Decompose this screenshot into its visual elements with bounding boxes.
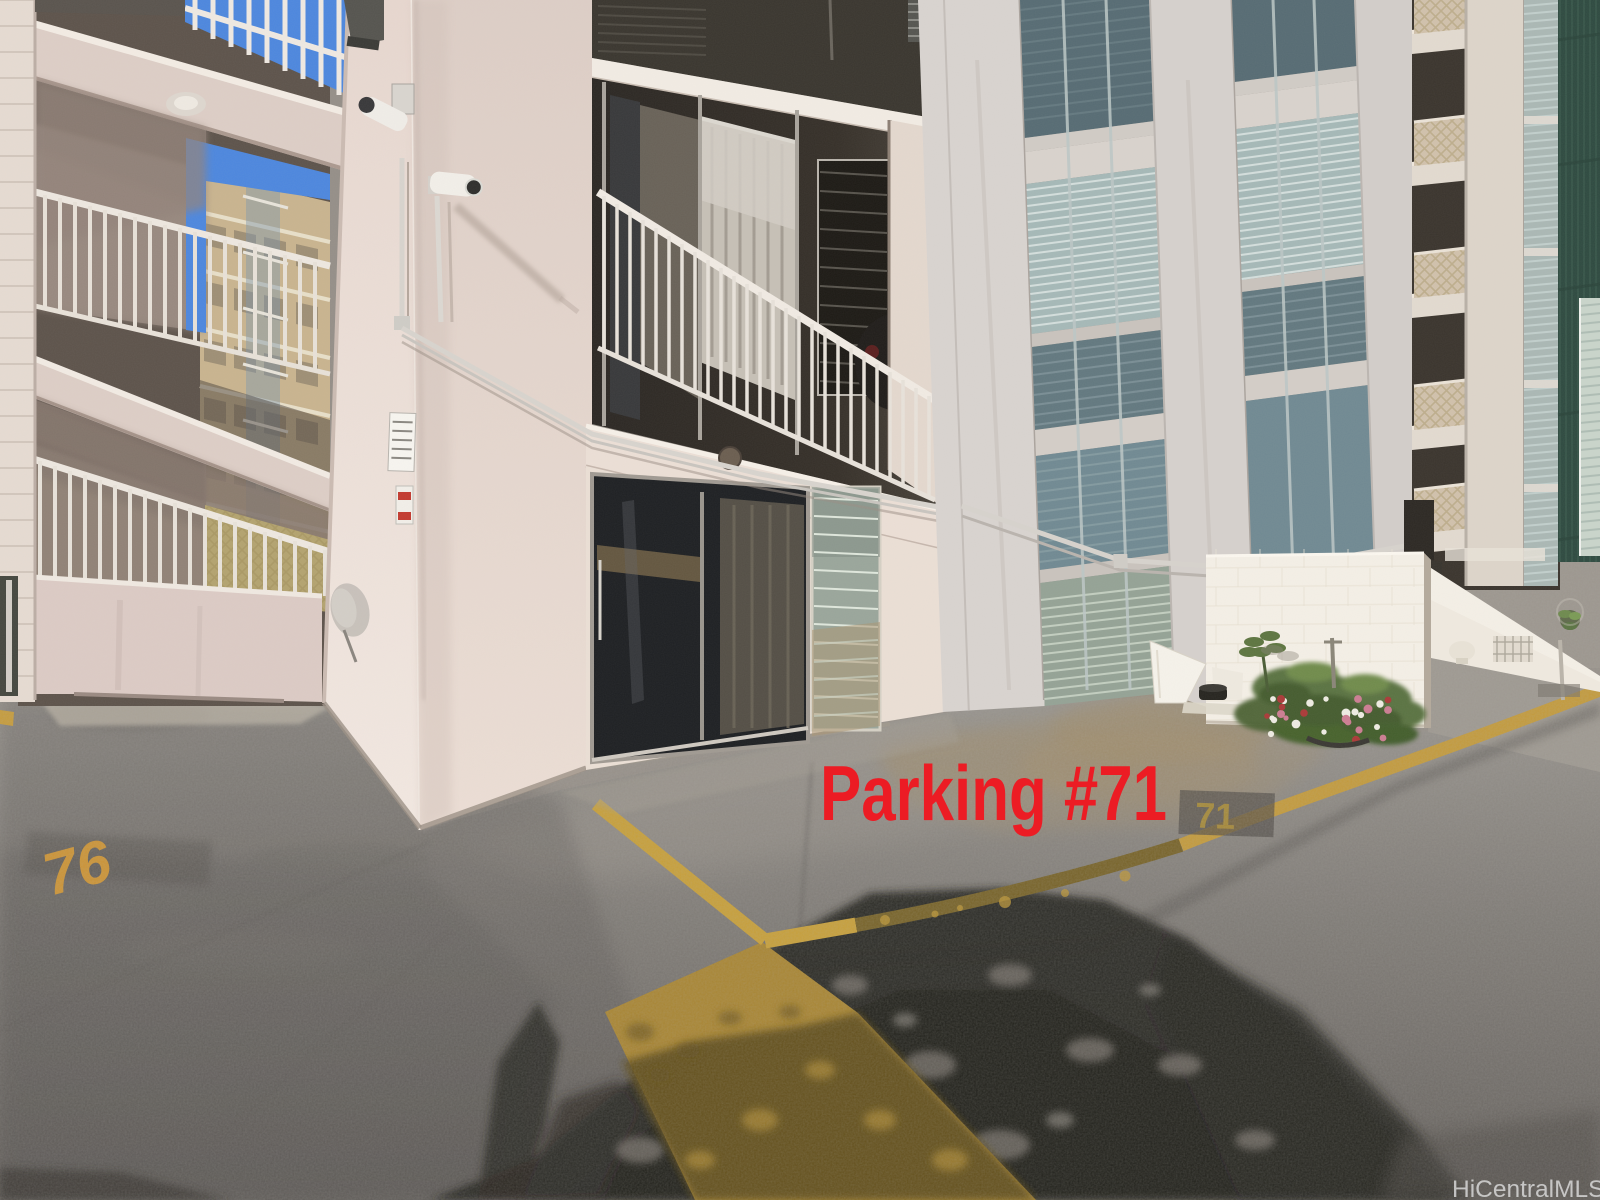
svg-text:Parking #71: Parking #71 (820, 749, 1167, 837)
svg-text:HiCentralMLS: HiCentralMLS (1452, 1176, 1600, 1200)
